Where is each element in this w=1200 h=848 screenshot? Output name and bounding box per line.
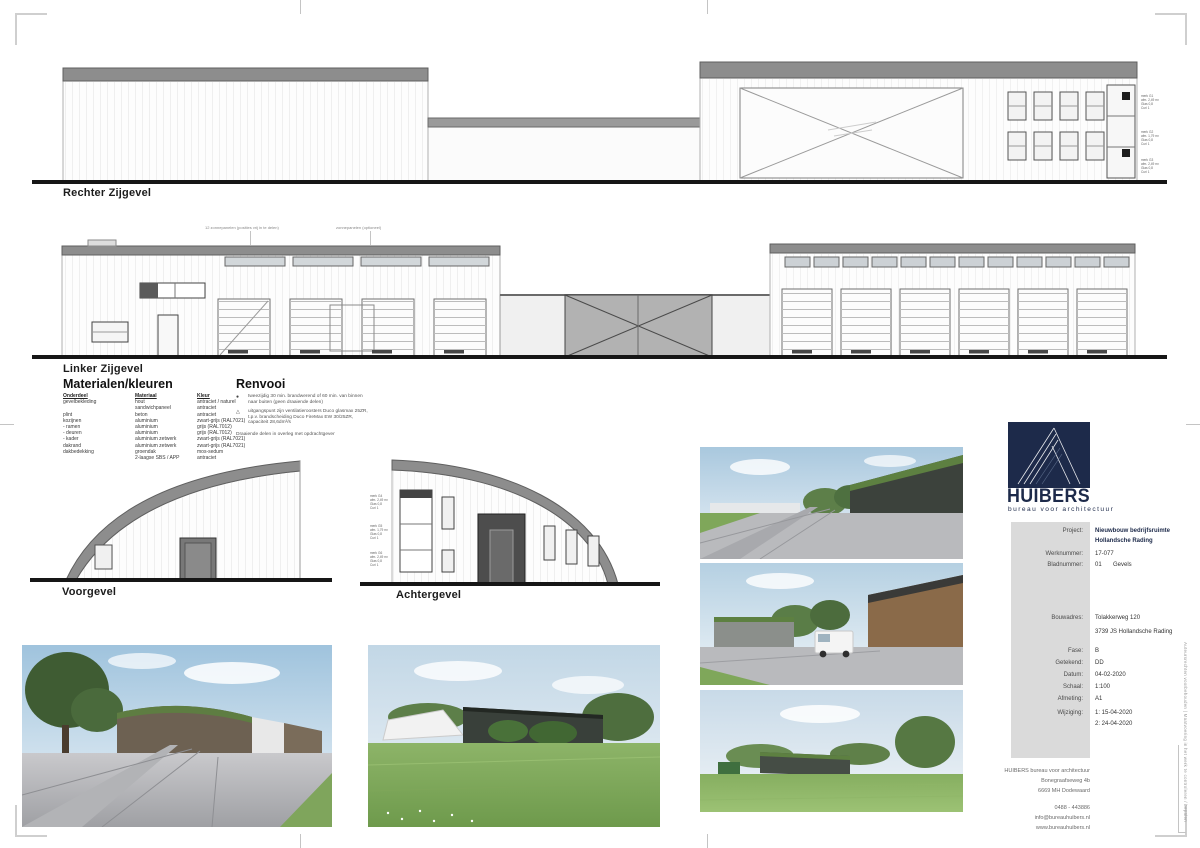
logo-tagline: bureau voor architectuur (1008, 506, 1114, 513)
office-city: 6669 MH Dodewaard (956, 786, 1090, 796)
office-email: info@bureauhuibers.nl (956, 813, 1090, 823)
huibers-logo-icon (1008, 422, 1090, 488)
field-label: Schaal: (1011, 684, 1083, 690)
field-label: Wijziging: (1011, 710, 1083, 716)
titleblock-panel (1011, 522, 1090, 758)
renvooi-item: ● tweezijdig 30 min. brandwerend of 60 m… (236, 394, 368, 405)
office-info: HUIBERS bureau voor architectuur Bonegra… (956, 766, 1090, 833)
datum-value: 04-02-2020 (1095, 672, 1126, 678)
render-field-view (700, 690, 963, 812)
bouwadres-value: 3739 JS Hollandsche Rading (1095, 629, 1172, 635)
drawing-sheet: Rechter Zijgevel merk G1afm. 2,49 m²Glas… (0, 0, 1200, 848)
field-label: Bouwadres: (1011, 615, 1083, 621)
office-name: HUIBERS bureau voor architectuur (956, 766, 1090, 776)
fold-mark (1186, 424, 1200, 425)
fase-value: B (1095, 648, 1099, 654)
bouwadres-value: Tolakkerweg 120 (1095, 615, 1140, 621)
getekend-value: DD (1095, 660, 1104, 666)
field-label: Getekend: (1011, 660, 1083, 666)
window-tag: merk G2afm. 1,79 m²Glas 0,8Curi 1 (1141, 130, 1159, 146)
triangle-symbol-icon: △ (236, 409, 248, 426)
fold-mark (707, 0, 708, 14)
logo-wordmark: HUIBERS (1007, 486, 1090, 508)
werknummer-value: 17-077 (1095, 551, 1114, 557)
titleblock-edge-line (1178, 832, 1186, 833)
label-achtergevel: Achtergevel (396, 589, 461, 601)
field-label: Fase: (1011, 648, 1083, 654)
edge-note: Auteursrechten voorbehouden | Maatvoerin… (1183, 642, 1188, 834)
field-label: Afmeting: (1011, 696, 1083, 702)
render-street-view (700, 447, 963, 559)
render-street-perspective (22, 645, 332, 827)
materials-title: Materialen/kleuren (63, 377, 173, 391)
field-label: Werknummer: (1011, 551, 1083, 557)
corner-mark (15, 13, 47, 45)
elevation-linker-drawing (30, 222, 1170, 362)
fold-mark (0, 424, 14, 425)
field-label: Datum: (1011, 672, 1083, 678)
field-label: Project: (1011, 528, 1083, 534)
fold-mark (300, 0, 301, 14)
window-tag: merk G1afm. 2,49 m²Glas 0,8Curi 1 (1141, 94, 1159, 110)
field-label: Bladnummer: (1011, 562, 1083, 568)
renvooi-item: △ uitgangspunt zijn ventilatieroosters D… (236, 409, 368, 426)
renvooi-footer: Draaiende delen in overleg met opdrachtg… (236, 432, 368, 438)
fold-mark (300, 834, 301, 848)
office-website: www.bureauhuibers.nl (956, 823, 1090, 833)
office-phone: 0488 - 443886 (956, 803, 1090, 813)
label-linker-zijgevel: Linker Zijgevel (63, 363, 143, 375)
render-van-view (700, 563, 963, 685)
render-garden-view (368, 645, 660, 827)
titleblock-edge-line (1178, 745, 1179, 833)
schaal-value: 1:100 (1095, 684, 1110, 690)
project-value: Hollandsche Rading (1095, 538, 1153, 544)
corner-mark (1155, 13, 1187, 45)
elevation-achtergevel-drawing (358, 452, 663, 590)
bladnummer-name: Gevels (1113, 562, 1132, 568)
office-street: Bonegraafseweg 4b (956, 776, 1090, 786)
elevation-rechter-drawing (30, 54, 1170, 188)
fold-mark (707, 834, 708, 848)
label-rechter-zijgevel: Rechter Zijgevel (63, 187, 151, 199)
wijziging-value: 1: 15-04-2020 (1095, 710, 1132, 716)
label-voorgevel: Voorgevel (62, 586, 116, 598)
project-value: Nieuwbouw bedrijfsruimte (1095, 528, 1170, 534)
wijziging-value: 2: 24-04-2020 (1095, 721, 1132, 727)
dot-symbol-icon: ● (236, 394, 248, 405)
window-tag: merk G3afm. 2,49 m²Glas 0,8Curi 1 (1141, 158, 1159, 174)
afmeting-value: A1 (1095, 696, 1102, 702)
bladnummer-value: 01 (1095, 562, 1102, 568)
renvooi-legend: ● tweezijdig 30 min. brandwerend of 60 m… (236, 394, 368, 438)
elevation-voorgevel-drawing (28, 452, 338, 587)
renvooi-title: Renvooi (236, 377, 285, 391)
